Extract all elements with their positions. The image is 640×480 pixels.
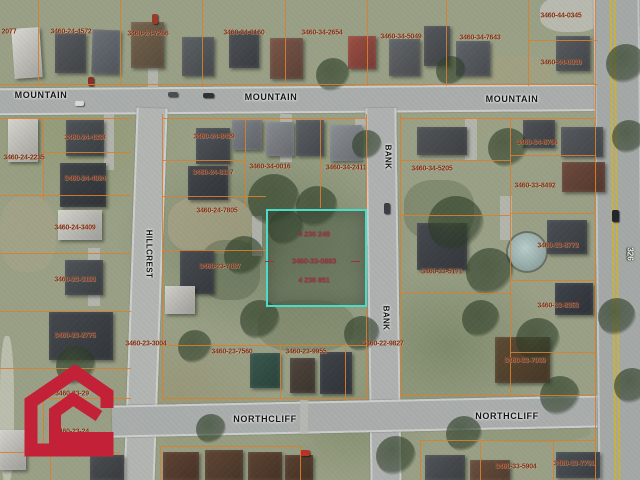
parcel-id-label: 3460-23-2775 — [54, 333, 95, 340]
lot-line — [0, 253, 131, 254]
lot-line — [0, 118, 131, 119]
tree-canopy — [462, 300, 500, 338]
parcel-id-label: 3460-34-2411 — [326, 165, 367, 172]
lot-line — [400, 395, 596, 396]
parcel-id-label: 3460-23-3004 — [125, 341, 166, 348]
lot-line — [162, 118, 367, 119]
lot-line — [245, 118, 246, 208]
lot-line — [420, 440, 421, 480]
lot-line — [480, 442, 481, 480]
house-footprint — [182, 37, 214, 76]
lot-line — [280, 345, 281, 398]
parcel-id-label: 3460-24-2235 — [3, 155, 44, 162]
lot-line — [162, 160, 245, 161]
house-footprint — [562, 162, 605, 192]
parcel-id-label: 3460-22-9827 — [362, 341, 403, 348]
parcel-id-label: 3460-24-7266 — [127, 31, 168, 38]
lot-line — [120, 0, 121, 86]
driveway — [104, 114, 114, 170]
lot-line — [446, 0, 447, 86]
parcel-id-label: 3460-24-8117 — [193, 170, 234, 177]
parcel-id-label: 3460-33-8492 — [514, 183, 555, 190]
tree-canopy — [540, 376, 580, 416]
parcel-id-label: 3460-34-7643 — [459, 35, 500, 42]
lot-line — [160, 446, 161, 480]
terrain-patch — [0, 196, 56, 272]
vehicle — [168, 92, 178, 97]
house-footprint — [290, 358, 315, 393]
road-mountain — [0, 84, 640, 116]
parcel-id-label: 3460-23-7560 — [211, 349, 252, 356]
house-footprint — [131, 22, 164, 68]
parcel-id-label: 3460-33-7039 — [504, 358, 545, 365]
survey-tick — [351, 261, 360, 262]
street-name-label: BANK — [382, 306, 391, 331]
lot-line — [38, 0, 39, 86]
tree-canopy — [598, 298, 636, 336]
parcel-id-label: 3460-33-5904 — [495, 464, 536, 471]
lot-line — [400, 118, 596, 119]
tree-canopy — [196, 414, 226, 444]
lot-line — [345, 345, 346, 398]
lot-line — [400, 215, 510, 216]
lot-line — [285, 0, 286, 86]
lot-line — [400, 114, 401, 398]
street-name-label: MOUNTAIN — [15, 90, 68, 100]
selected-parcel-value-label: 4 236 248 — [298, 230, 330, 239]
tree-canopy — [352, 130, 382, 160]
street-name-label: MOUNTAIN — [486, 94, 539, 104]
parcel-id-label: 3460-33-8772 — [537, 243, 578, 250]
lot-line — [320, 118, 321, 208]
lot-line — [510, 213, 596, 214]
lot-line — [528, 40, 598, 41]
parcel-id-label: 3460-34-0016 — [249, 164, 290, 171]
parcel-id-label: 2077 — [2, 29, 17, 36]
lot-line — [510, 280, 596, 281]
street-name-label: HILLCREST — [145, 230, 154, 279]
lot-line — [595, 0, 596, 480]
vehicle — [384, 203, 390, 214]
route-326-label: 326 — [626, 247, 635, 260]
parcel-id-label: 3460-33-5171 — [421, 269, 462, 276]
parcel-id-label: 3460-24-8429 — [193, 134, 234, 141]
house-logo-icon — [22, 360, 122, 466]
parcel-id-label: 3460-34-2654 — [301, 30, 342, 37]
tree-canopy — [436, 56, 466, 86]
driveway — [300, 400, 308, 434]
lot-line — [300, 446, 301, 480]
lot-line — [162, 114, 163, 398]
tree-canopy — [488, 128, 528, 168]
lot-line — [202, 0, 203, 86]
house-footprint — [91, 30, 121, 75]
lot-line — [162, 398, 367, 399]
parcel-id-label: 3460-24-4024 — [64, 176, 105, 183]
lot-line — [162, 345, 367, 346]
lot-line — [0, 84, 598, 85]
tree-canopy — [316, 58, 350, 92]
house-footprint — [163, 452, 199, 480]
lot-line — [160, 446, 300, 447]
tree-canopy — [376, 436, 416, 476]
house-footprint — [266, 122, 294, 156]
house-footprint — [248, 452, 282, 480]
round-pool — [508, 233, 546, 271]
house-footprint — [555, 283, 593, 315]
parcel-id-label: 3460-24-4572 — [50, 29, 91, 36]
survey-tick — [265, 261, 274, 262]
vehicle — [152, 14, 158, 24]
parcel-id-label: 3460-24-7805 — [196, 208, 237, 215]
selected-parcel-value-label: 4 236 851 — [298, 276, 330, 285]
parcel-id-label: 3460-34-0160 — [223, 30, 264, 37]
parcel-id-label: 3460-34-5049 — [380, 34, 421, 41]
house-footprint — [320, 352, 352, 394]
lot-line — [400, 293, 510, 294]
parcel-id-label: 3460-44-0345 — [540, 13, 581, 20]
street-name-label: BANK — [384, 145, 393, 170]
parcel-id-label: 3460-24-4338 — [64, 135, 105, 142]
lot-line — [0, 195, 131, 196]
lot-line — [0, 311, 131, 312]
parcel-id-label: 3460-23-3193 — [54, 277, 95, 284]
tree-canopy — [178, 330, 212, 364]
parcel-id-label: 3460-34-8706 — [516, 140, 557, 147]
lot-line — [162, 196, 266, 197]
house-footprint — [250, 353, 280, 388]
house-footprint — [425, 455, 465, 480]
house-footprint — [561, 127, 603, 157]
house-footprint — [285, 455, 313, 480]
house-footprint — [55, 33, 86, 73]
house-footprint — [229, 31, 259, 68]
tree-canopy — [606, 44, 640, 84]
map-viewport[interactable]: 4 236 2483460-33-08834 236 851 20773460-… — [0, 0, 640, 480]
house-footprint — [60, 163, 106, 207]
parcel-id-label: 3460-23-7887 — [199, 264, 240, 271]
tree-canopy — [428, 196, 484, 252]
house-footprint — [389, 39, 420, 76]
lot-line — [510, 352, 596, 353]
lot-line — [367, 0, 368, 86]
vehicle — [203, 93, 214, 98]
tree-canopy — [466, 248, 514, 296]
lot-line — [510, 155, 596, 156]
parcel-id-label: 3460-23-9955 — [285, 349, 326, 356]
lot-line — [420, 440, 595, 441]
street-name-label: MOUNTAIN — [245, 92, 298, 102]
parcel-id-label: 3460-33-8353 — [537, 303, 578, 310]
parcel-id-label: 3460-24-3409 — [54, 225, 95, 232]
vehicle — [75, 101, 84, 106]
house-footprint — [205, 450, 243, 480]
house-footprint — [417, 127, 467, 155]
parcel-id-label: 3460-33-7701 — [553, 461, 594, 468]
house-footprint — [348, 36, 376, 69]
tree-canopy — [612, 120, 640, 154]
lot-line — [162, 250, 266, 251]
parcel-id-label: 3460-34-5205 — [411, 166, 452, 173]
lot-line — [528, 0, 529, 86]
tree-canopy — [446, 416, 482, 452]
selected-parcel-value-label: 3460-33-0883 — [292, 257, 336, 266]
vehicle — [612, 210, 619, 222]
tree-canopy — [516, 318, 560, 362]
lot-line — [400, 160, 510, 161]
lot-line — [43, 152, 131, 153]
house-footprint — [232, 120, 262, 150]
vehicle — [300, 450, 310, 456]
lot-line — [510, 118, 511, 395]
house-footprint — [165, 286, 195, 314]
house-footprint — [270, 38, 303, 79]
parcel-id-label: 3460-44-0030 — [540, 60, 581, 67]
street-name-label: NORTHCLIFF — [233, 414, 297, 424]
street-name-label: NORTHCLIFF — [475, 411, 539, 421]
